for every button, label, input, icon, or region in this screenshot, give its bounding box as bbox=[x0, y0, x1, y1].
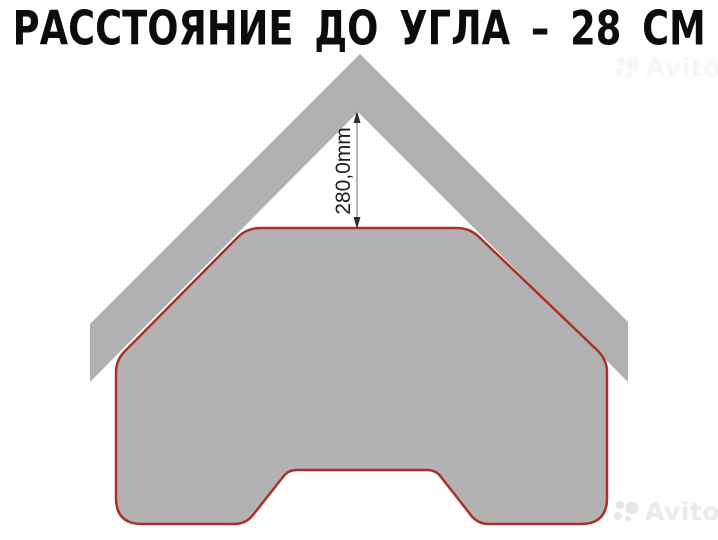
corner-distance-diagram: 280,0mm bbox=[0, 0, 718, 540]
product-image-page: РАССТОЯНИЕ ДО УГЛА – 28 СМ 280,0mm Avito bbox=[0, 0, 718, 540]
dimension-label: 280,0mm bbox=[332, 127, 355, 215]
